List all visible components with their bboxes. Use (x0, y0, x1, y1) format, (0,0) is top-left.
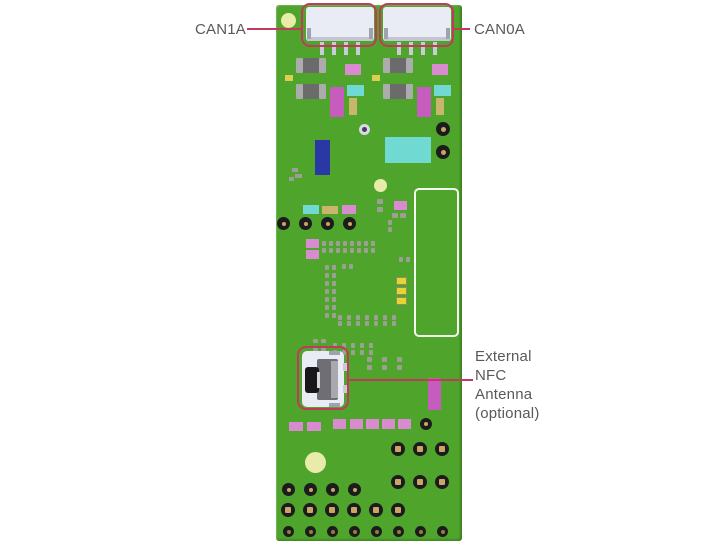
pad-array (374, 321, 378, 326)
smd-pad (295, 174, 302, 178)
hole-core (348, 222, 352, 226)
pad-array (357, 248, 361, 253)
hole-core (351, 507, 357, 513)
pad-array (343, 248, 347, 253)
smd-pad (382, 419, 395, 429)
pad-array (371, 241, 375, 246)
pad-array (349, 264, 353, 269)
pad-array (365, 321, 369, 326)
module-outline (414, 188, 459, 337)
via-hole-row (371, 526, 382, 537)
smd-chip (319, 84, 326, 99)
nfc-antenna-label: External NFC Antenna (optional) (475, 347, 540, 423)
hole-core (329, 507, 335, 513)
nfc-highlight (297, 346, 349, 410)
smd-chip (406, 84, 413, 99)
pad-array (325, 265, 329, 270)
hole-core (285, 507, 291, 513)
hole-core (309, 530, 313, 534)
pad-array (382, 357, 387, 362)
pad-array (338, 315, 342, 320)
through-hole-row (413, 475, 427, 489)
pad-array (325, 313, 329, 318)
through-hole-row (435, 475, 449, 489)
pad-array (332, 297, 336, 302)
pad-array (351, 343, 355, 348)
via-hole-row (282, 483, 295, 496)
hole-core (441, 530, 445, 534)
pad-array (329, 248, 333, 253)
smd-component (303, 205, 319, 214)
via-hole-row (327, 526, 338, 537)
through-hole-row (413, 442, 427, 456)
smd-component (347, 85, 364, 96)
pad-array (364, 241, 368, 246)
hole-core (424, 422, 428, 426)
pad-array (388, 227, 392, 232)
smd-chip (319, 58, 326, 73)
hole-core (417, 479, 423, 485)
can0a-label: CAN0A (474, 21, 525, 38)
pad-array (350, 241, 354, 246)
smd-component (428, 378, 441, 410)
through-hole-row (325, 503, 339, 517)
hole-core (439, 446, 445, 452)
nfc-callout-line (349, 379, 473, 381)
through-hole-row (303, 503, 317, 517)
smd-chip (296, 84, 303, 99)
hole-core (307, 507, 313, 513)
pad-array (364, 248, 368, 253)
smd-component (345, 64, 361, 75)
pad-array (351, 350, 355, 355)
pad-array (332, 265, 336, 270)
pcb-annotation-diagram: CAN1A CAN0A External NFC Antenna (option… (0, 0, 720, 550)
smd-component (306, 250, 319, 259)
pad-array (347, 321, 351, 326)
via-hole-row (343, 217, 356, 230)
pad-array (406, 257, 410, 262)
through-hole-row (347, 503, 361, 517)
smd-component (306, 239, 319, 248)
smd-pad (292, 168, 298, 172)
pad-array (321, 339, 326, 343)
fiducial-dot (305, 452, 326, 473)
pad-array (313, 339, 318, 343)
can1a-highlight (301, 3, 377, 47)
pad-array (397, 357, 402, 362)
pad-array (377, 199, 383, 204)
hole-core (439, 479, 445, 485)
can1a-callout-line (247, 28, 301, 30)
pad-array (357, 241, 361, 246)
smd-component (434, 85, 451, 96)
hole-core (397, 530, 401, 534)
pad-array (332, 281, 336, 286)
via-hole-row (283, 526, 294, 537)
pad-array (332, 289, 336, 294)
gold-pad (396, 297, 407, 305)
pad-array (382, 365, 387, 370)
hole-core (304, 222, 308, 226)
via-hole-row (304, 483, 317, 496)
pad-array (356, 315, 360, 320)
via-hole (436, 122, 450, 136)
pad-array (322, 241, 326, 246)
pad-array (374, 315, 378, 320)
pad-array (325, 297, 329, 302)
hole-core (353, 530, 357, 534)
smd-component (417, 87, 431, 117)
hole-core (375, 530, 379, 534)
pad-array (325, 273, 329, 278)
pad-array (325, 289, 329, 294)
smd-pad (289, 422, 303, 431)
pad-array (392, 321, 396, 326)
pad-array (388, 220, 392, 225)
smd-chip (303, 58, 319, 73)
smd-chip (383, 84, 390, 99)
smd-component (436, 98, 444, 115)
pad-array (369, 343, 373, 348)
via-hole-row (349, 526, 360, 537)
pad-array (329, 241, 333, 246)
via-hole-row (326, 483, 339, 496)
smd-component (349, 98, 357, 115)
via-hole-row (321, 217, 334, 230)
hole-core (441, 150, 446, 155)
hole-core (395, 446, 401, 452)
via-hole-row (305, 526, 316, 537)
pad-array (343, 241, 347, 246)
hole-core (287, 530, 291, 534)
gold-pad (396, 287, 407, 295)
pad-array (332, 273, 336, 278)
pad-array (399, 257, 403, 262)
via-hole-row (299, 217, 312, 230)
pad-array (377, 207, 383, 212)
pad-array (360, 350, 364, 355)
hole-core (395, 507, 401, 513)
hole-core (441, 127, 446, 132)
pad-array (350, 248, 354, 253)
hole-core (373, 507, 379, 513)
smd-component (432, 64, 448, 75)
smd-component (330, 87, 344, 117)
hole-core (331, 488, 335, 492)
hole-core (282, 222, 286, 226)
pad-array (322, 248, 326, 253)
pad-array (325, 281, 329, 286)
pad-array (336, 248, 340, 253)
pad-array (371, 248, 375, 253)
pad-array (332, 313, 336, 318)
pad-array (332, 305, 336, 310)
via-hole-row (277, 217, 290, 230)
through-hole-row (391, 442, 405, 456)
smd-chip (390, 58, 406, 73)
pad-array (392, 315, 396, 320)
smd-component (322, 206, 338, 214)
fiducial-dot (281, 13, 296, 28)
pad-array (383, 321, 387, 326)
through-hole-row (435, 442, 449, 456)
pad-array (369, 350, 373, 355)
pad-array (367, 357, 372, 362)
hole-core (309, 488, 313, 492)
pad-array (397, 365, 402, 370)
hole-core (287, 488, 291, 492)
hole-core (419, 530, 423, 534)
smd-pad (372, 75, 380, 81)
hole-core (417, 446, 423, 452)
smd-component (315, 140, 330, 175)
via-hole-row (348, 483, 361, 496)
via-hole (420, 418, 432, 430)
smd-pad (285, 75, 293, 81)
pad-array (365, 315, 369, 320)
smd-chip (303, 84, 319, 99)
pad-array (400, 213, 406, 218)
via-hole-row (415, 526, 426, 537)
pad-array (356, 321, 360, 326)
can0a-highlight (379, 3, 454, 47)
fiducial-dot (374, 179, 387, 192)
via-hole (436, 145, 450, 159)
hole-core (326, 222, 330, 226)
test-point-center (362, 127, 367, 132)
smd-pad (350, 419, 363, 429)
smd-component (385, 137, 431, 163)
pad-array (336, 241, 340, 246)
can1a-label: CAN1A (190, 21, 246, 38)
pad-array (367, 365, 372, 370)
pad-array (325, 305, 329, 310)
smd-component (342, 205, 356, 214)
through-hole-row (281, 503, 295, 517)
hole-core (353, 488, 357, 492)
smd-pad (289, 177, 294, 181)
pad-array (392, 213, 398, 218)
pad-array (342, 264, 346, 269)
smd-pad (307, 422, 321, 431)
smd-chip (296, 58, 303, 73)
pad-array (347, 315, 351, 320)
smd-chip (406, 58, 413, 73)
smd-pad (333, 419, 346, 429)
via-hole-row (393, 526, 404, 537)
can0a-callout-line (454, 28, 470, 30)
pad-array (360, 343, 364, 348)
smd-component (394, 201, 407, 210)
through-hole-row (391, 503, 405, 517)
hole-core (395, 479, 401, 485)
through-hole-row (369, 503, 383, 517)
pad-array (383, 315, 387, 320)
hole-core (331, 530, 335, 534)
smd-chip (383, 58, 390, 73)
via-hole-row (437, 526, 448, 537)
smd-chip (390, 84, 406, 99)
gold-pad (396, 277, 407, 285)
through-hole-row (391, 475, 405, 489)
smd-pad (366, 419, 379, 429)
pad-array (338, 321, 342, 326)
smd-pad (398, 419, 411, 429)
